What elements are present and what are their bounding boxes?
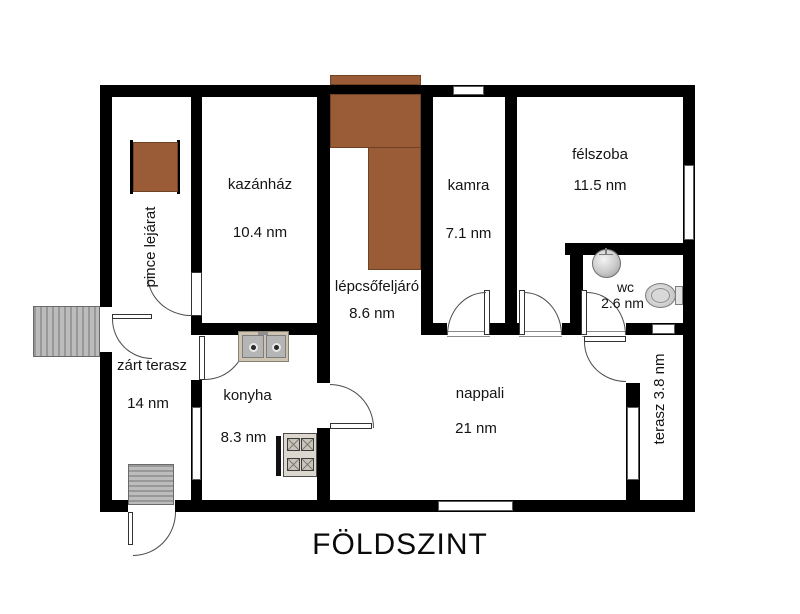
wall-left-lower bbox=[100, 352, 112, 512]
kitchen-sink-drain-left bbox=[249, 343, 258, 352]
wall-lepcso-kamra bbox=[421, 97, 433, 335]
room-area-kamra: 7.1 nm bbox=[421, 226, 516, 243]
window-nappali-south bbox=[438, 501, 513, 511]
room-label-kazanhaz: kazánház bbox=[202, 177, 318, 194]
wall-kamra-felszoba bbox=[505, 97, 517, 335]
room-area-zart-terasz: 14 nm bbox=[98, 396, 198, 413]
kazanhaz-door-leaf bbox=[191, 272, 202, 316]
room-area-lepcsofeljaro: 8.6 nm bbox=[317, 306, 427, 323]
window-wc-terasz bbox=[652, 324, 675, 334]
kamra-door-arc bbox=[447, 292, 486, 335]
terrace-exit-steps bbox=[128, 464, 174, 505]
entrance-door-arc bbox=[112, 319, 152, 359]
felszoba-door-arc bbox=[524, 292, 562, 335]
staircase-upper-run bbox=[368, 147, 421, 270]
room-area-wc: 2.6 nm bbox=[580, 296, 665, 311]
room-label-lepcsofeljaro: lépcsőfeljáró bbox=[317, 279, 437, 296]
basement-staircase bbox=[133, 142, 178, 192]
kitchen-sink-faucet bbox=[258, 332, 268, 335]
toilet-tank bbox=[675, 286, 683, 305]
room-label-felszoba: félszoba bbox=[517, 147, 683, 164]
wall-bottom bbox=[100, 500, 695, 512]
room-label-pince-lejarat: pince lejárat bbox=[142, 187, 160, 307]
room-label-konyha: konyha bbox=[190, 388, 305, 405]
page-title: FÖLDSZINT bbox=[250, 528, 550, 562]
room-label-zart-terasz: zárt terasz bbox=[102, 358, 202, 375]
terasz-door-arc bbox=[584, 342, 626, 382]
kitchen-sink-drain-right bbox=[272, 343, 281, 352]
wall-left-upper bbox=[100, 85, 112, 307]
room-label-terasz: terasz 3.8 nm bbox=[651, 334, 667, 464]
entrance-opening bbox=[100, 307, 112, 352]
room-label-nappali: nappali bbox=[380, 386, 580, 403]
exterior-entry-stairs bbox=[33, 306, 100, 357]
room-label-kamra: kamra bbox=[421, 178, 516, 195]
room-area-felszoba: 11.5 nm bbox=[517, 178, 683, 195]
stove-burner bbox=[301, 438, 314, 451]
exit-door-arc bbox=[133, 512, 176, 556]
konyha-nappali-door-leaf bbox=[330, 423, 372, 429]
konyha-nappali-opening bbox=[317, 383, 330, 428]
staircase-upper-top-strip bbox=[330, 75, 421, 85]
wc-washbasin-tap-bar bbox=[599, 254, 613, 255]
room-area-konyha: 8.3 nm bbox=[186, 430, 301, 447]
staircase-upper-main bbox=[330, 94, 421, 148]
room-area-nappali: 21 nm bbox=[376, 421, 576, 438]
floor-plan: pince lejárat kazánház 10.4 nm lépcsőfel… bbox=[0, 0, 800, 614]
stove-burner bbox=[301, 458, 314, 471]
wall-right bbox=[683, 85, 695, 512]
wall-kazanhaz-konyha-east bbox=[317, 97, 330, 500]
window-felszoba-right bbox=[684, 165, 694, 240]
wall-wc-top bbox=[565, 243, 695, 255]
konyha-nappali-door-arc bbox=[330, 384, 374, 428]
terasz-door-opening bbox=[626, 335, 640, 383]
stove-burner bbox=[287, 458, 300, 471]
room-area-kazanhaz: 10.4 nm bbox=[202, 225, 318, 242]
room-label-wc: wc bbox=[583, 280, 668, 295]
window-nappali-terasz bbox=[627, 407, 639, 480]
window-top bbox=[453, 86, 484, 95]
